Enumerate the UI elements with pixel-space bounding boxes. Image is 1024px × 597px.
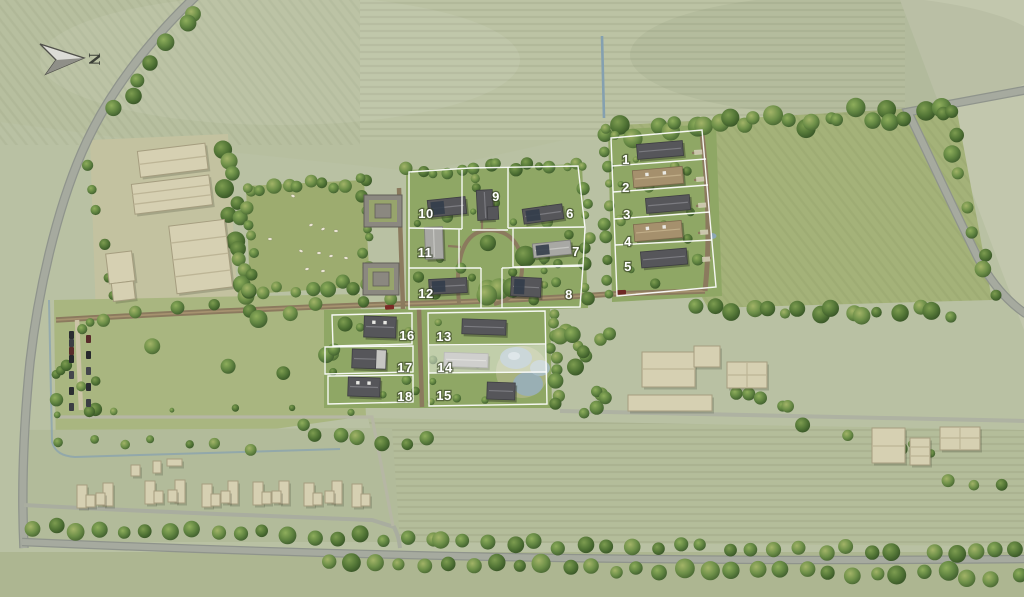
parked-car bbox=[86, 383, 91, 391]
tree bbox=[144, 338, 160, 354]
tree bbox=[578, 537, 595, 554]
tree bbox=[82, 160, 93, 171]
tree bbox=[92, 522, 108, 538]
tree bbox=[146, 435, 154, 443]
tree bbox=[943, 145, 960, 162]
tree bbox=[567, 359, 584, 376]
tree bbox=[254, 185, 265, 196]
tree bbox=[91, 376, 101, 386]
tree bbox=[356, 173, 366, 183]
plot-region-17[interactable] bbox=[325, 346, 413, 374]
tree bbox=[342, 553, 361, 572]
tree bbox=[668, 116, 681, 129]
village-house-wing bbox=[96, 493, 105, 505]
village-house-wing bbox=[313, 493, 322, 505]
tree bbox=[760, 301, 775, 316]
tree bbox=[744, 543, 758, 557]
plot-region-7[interactable] bbox=[513, 228, 585, 267]
tree bbox=[320, 281, 336, 297]
tree bbox=[891, 304, 908, 321]
tree bbox=[110, 408, 118, 416]
tree bbox=[599, 231, 612, 244]
tree bbox=[952, 167, 964, 179]
tree bbox=[688, 299, 703, 314]
tree bbox=[871, 567, 884, 580]
plot-region-4[interactable] bbox=[615, 218, 720, 245]
tree bbox=[803, 114, 820, 131]
tree bbox=[170, 408, 175, 413]
tree bbox=[232, 404, 239, 411]
tree bbox=[763, 105, 783, 125]
tree bbox=[945, 311, 956, 322]
tree bbox=[551, 541, 565, 555]
tree bbox=[240, 201, 253, 214]
tree bbox=[322, 554, 336, 568]
tree bbox=[549, 398, 561, 410]
plot-region-3[interactable] bbox=[614, 190, 718, 218]
parked-car bbox=[86, 335, 91, 343]
tree bbox=[234, 527, 248, 541]
tree bbox=[346, 282, 359, 295]
tree bbox=[830, 114, 843, 127]
tree bbox=[846, 98, 865, 117]
tree bbox=[97, 314, 110, 327]
plot-region-12[interactable] bbox=[409, 268, 481, 308]
tree bbox=[795, 418, 810, 433]
east-farm-building bbox=[694, 346, 720, 367]
plot-region-18[interactable] bbox=[328, 375, 413, 404]
tree bbox=[821, 566, 835, 580]
tree bbox=[455, 534, 469, 548]
tree bbox=[962, 202, 974, 214]
tree bbox=[1007, 541, 1023, 557]
tree bbox=[244, 220, 254, 230]
tree bbox=[255, 525, 268, 538]
tree bbox=[838, 539, 853, 554]
tree bbox=[328, 183, 339, 194]
tree bbox=[374, 436, 389, 451]
plot-region-15[interactable] bbox=[429, 373, 547, 406]
village-outbuilding bbox=[167, 459, 182, 466]
parked-car bbox=[69, 347, 74, 355]
tree bbox=[316, 177, 327, 188]
tree bbox=[289, 405, 295, 411]
tree bbox=[651, 565, 667, 581]
tree bbox=[968, 543, 984, 559]
tree bbox=[724, 544, 737, 557]
tree bbox=[367, 554, 384, 571]
tree bbox=[243, 183, 253, 193]
tree bbox=[507, 536, 524, 553]
tree bbox=[99, 239, 110, 250]
tree bbox=[701, 561, 720, 580]
tree bbox=[871, 307, 882, 318]
plot-region-9[interactable] bbox=[462, 167, 508, 230]
tree bbox=[118, 526, 131, 539]
tree bbox=[67, 523, 85, 541]
village-outbuilding bbox=[153, 461, 161, 473]
tree bbox=[789, 301, 805, 317]
tree bbox=[402, 439, 414, 451]
tree bbox=[577, 345, 590, 358]
tree bbox=[53, 438, 63, 448]
tree bbox=[186, 440, 194, 448]
far-east-building bbox=[910, 438, 930, 465]
tree bbox=[624, 539, 641, 556]
tree bbox=[605, 290, 614, 299]
village-house-wing bbox=[168, 490, 177, 502]
tree bbox=[652, 542, 665, 555]
tree bbox=[969, 480, 980, 491]
tree bbox=[601, 124, 611, 134]
car-on-road bbox=[617, 290, 626, 295]
tree bbox=[180, 15, 197, 32]
tree bbox=[417, 559, 432, 574]
tree bbox=[674, 537, 688, 551]
tree bbox=[291, 287, 302, 298]
tree bbox=[309, 297, 323, 311]
tree bbox=[750, 561, 767, 578]
tree bbox=[171, 301, 185, 315]
tree bbox=[91, 205, 101, 215]
tree bbox=[958, 570, 975, 587]
tree bbox=[297, 419, 309, 431]
tree bbox=[927, 544, 943, 560]
car-court bbox=[364, 195, 402, 227]
tree bbox=[526, 533, 542, 549]
tree bbox=[975, 261, 992, 278]
tree bbox=[25, 521, 41, 537]
tree bbox=[305, 175, 318, 188]
tree bbox=[334, 428, 349, 443]
tree bbox=[599, 540, 613, 554]
tree bbox=[347, 409, 354, 416]
plot-region-13[interactable] bbox=[428, 312, 546, 345]
tree bbox=[939, 561, 959, 581]
village-house-wing bbox=[262, 492, 271, 504]
tree bbox=[942, 474, 955, 487]
tree bbox=[480, 535, 495, 550]
tree bbox=[142, 55, 157, 70]
plot-region-14[interactable] bbox=[429, 345, 547, 373]
parked-car bbox=[69, 339, 74, 347]
tree bbox=[675, 559, 695, 579]
car-on-road bbox=[385, 305, 394, 310]
sheep bbox=[317, 252, 321, 255]
compass-north-label: N bbox=[85, 53, 104, 66]
tree bbox=[225, 166, 240, 181]
tree bbox=[948, 545, 966, 563]
tree bbox=[746, 111, 759, 124]
tree bbox=[864, 112, 881, 129]
car-court-center bbox=[375, 204, 391, 218]
tree bbox=[881, 114, 898, 131]
tree bbox=[579, 408, 590, 419]
tree bbox=[130, 74, 144, 88]
village-house-wing bbox=[211, 494, 220, 506]
tree bbox=[330, 532, 345, 547]
tree bbox=[76, 381, 86, 391]
tree bbox=[865, 545, 879, 559]
tree bbox=[882, 543, 900, 561]
tree bbox=[183, 521, 200, 538]
tree bbox=[945, 105, 958, 118]
tree bbox=[105, 100, 121, 116]
tree bbox=[599, 147, 610, 158]
tree bbox=[212, 526, 226, 540]
tree bbox=[250, 310, 268, 328]
plot-region-5[interactable] bbox=[616, 245, 724, 290]
tree bbox=[548, 373, 564, 389]
tree bbox=[308, 531, 323, 546]
tree bbox=[401, 531, 415, 545]
parked-car bbox=[69, 371, 74, 379]
tree bbox=[754, 391, 767, 404]
plot-region-2[interactable] bbox=[613, 161, 715, 191]
tree bbox=[551, 352, 563, 364]
village-house-wing bbox=[86, 495, 95, 507]
tree bbox=[979, 249, 992, 262]
tree bbox=[162, 523, 179, 540]
sheep bbox=[268, 238, 272, 241]
parked-car bbox=[69, 387, 74, 395]
plot-region-16[interactable] bbox=[332, 313, 412, 346]
car-court-center bbox=[373, 272, 389, 286]
tree bbox=[966, 226, 978, 238]
tree bbox=[50, 393, 63, 406]
tree bbox=[564, 326, 581, 343]
tree bbox=[49, 518, 65, 534]
tree bbox=[125, 88, 142, 105]
tree bbox=[722, 562, 739, 579]
tree bbox=[339, 179, 352, 192]
tree bbox=[209, 299, 220, 310]
plot-region-1[interactable] bbox=[612, 133, 712, 165]
tree bbox=[357, 248, 368, 259]
village-house-wing bbox=[221, 491, 230, 503]
tree bbox=[246, 269, 258, 281]
tree bbox=[54, 412, 61, 419]
tree bbox=[308, 428, 322, 442]
tree bbox=[432, 531, 449, 548]
tree bbox=[365, 233, 373, 241]
tree bbox=[221, 359, 236, 374]
tree bbox=[780, 308, 790, 318]
tree bbox=[991, 290, 1002, 301]
field-south-furrows bbox=[368, 418, 1024, 546]
farmhouse bbox=[106, 251, 135, 284]
tree bbox=[563, 560, 578, 575]
parked-car bbox=[86, 367, 91, 375]
tree bbox=[532, 554, 551, 573]
tree bbox=[242, 283, 256, 297]
tree bbox=[584, 232, 596, 244]
tree bbox=[581, 292, 595, 306]
tree bbox=[548, 318, 559, 329]
tree bbox=[352, 525, 369, 542]
tree bbox=[90, 435, 99, 444]
tree bbox=[629, 561, 643, 575]
tree bbox=[266, 178, 281, 193]
sheep-pasture bbox=[246, 180, 370, 294]
village-house-wing bbox=[154, 491, 163, 503]
tree bbox=[209, 438, 220, 449]
village-house-wing bbox=[325, 491, 334, 503]
tree bbox=[896, 112, 911, 127]
tree bbox=[822, 300, 839, 317]
village-house-wing bbox=[272, 491, 281, 503]
tree bbox=[792, 541, 806, 555]
tree bbox=[583, 558, 599, 574]
plot-region-8[interactable] bbox=[502, 267, 583, 308]
tree bbox=[480, 235, 496, 251]
tree bbox=[603, 327, 616, 340]
tree bbox=[922, 302, 940, 320]
tree bbox=[853, 307, 871, 325]
village-house-wing bbox=[361, 494, 370, 506]
tree bbox=[377, 535, 389, 547]
sheep bbox=[334, 230, 338, 233]
tree bbox=[245, 444, 257, 456]
tree bbox=[694, 539, 706, 551]
tree bbox=[766, 542, 781, 557]
tree bbox=[514, 560, 526, 572]
tree bbox=[392, 558, 404, 570]
parked-car bbox=[69, 403, 74, 411]
tree bbox=[842, 430, 853, 441]
tree bbox=[77, 324, 87, 334]
tree bbox=[467, 558, 482, 573]
plot-region-6[interactable] bbox=[508, 167, 585, 228]
tree bbox=[129, 306, 142, 319]
tree bbox=[87, 185, 96, 194]
parked-car bbox=[86, 399, 91, 407]
east-farm-barn bbox=[628, 395, 712, 411]
tree bbox=[844, 568, 861, 585]
tree bbox=[271, 282, 282, 293]
tree bbox=[708, 298, 724, 314]
tree bbox=[598, 218, 611, 231]
tree bbox=[610, 566, 623, 579]
tree bbox=[138, 524, 152, 538]
tree bbox=[86, 318, 95, 327]
parked-car bbox=[69, 331, 74, 339]
tree bbox=[283, 306, 298, 321]
tree bbox=[772, 561, 789, 578]
tree bbox=[215, 179, 234, 198]
tree bbox=[887, 566, 906, 585]
tree bbox=[291, 181, 303, 193]
tree bbox=[996, 479, 1008, 491]
tree bbox=[276, 366, 290, 380]
tree bbox=[279, 527, 297, 545]
farmhouse-wing bbox=[111, 281, 135, 302]
tree bbox=[782, 113, 796, 127]
tree bbox=[358, 296, 369, 307]
parked-car bbox=[86, 351, 91, 359]
plot-region-11[interactable] bbox=[409, 228, 459, 268]
tree bbox=[120, 440, 130, 450]
tree bbox=[601, 275, 612, 286]
tree bbox=[987, 542, 1002, 557]
plot-region-10[interactable] bbox=[409, 171, 462, 228]
tree bbox=[694, 117, 713, 136]
village-outbuilding bbox=[131, 465, 140, 476]
tree bbox=[306, 282, 320, 296]
site-plan-svg: 123456789101112131415161718 N bbox=[0, 0, 1024, 597]
tree bbox=[800, 561, 816, 577]
tree bbox=[249, 248, 259, 258]
tree bbox=[982, 571, 998, 587]
tree bbox=[549, 309, 559, 319]
tree bbox=[349, 430, 364, 445]
sheep bbox=[321, 269, 325, 272]
tree bbox=[819, 545, 834, 560]
tree bbox=[917, 565, 931, 579]
site-plan-map: 123456789101112131415161718 N bbox=[0, 0, 1024, 597]
tree bbox=[599, 391, 612, 404]
tree bbox=[488, 554, 505, 571]
tree bbox=[420, 431, 434, 445]
tree bbox=[441, 557, 456, 572]
tree bbox=[84, 406, 95, 417]
tree bbox=[781, 400, 794, 413]
tree bbox=[722, 303, 740, 321]
tree bbox=[602, 255, 612, 265]
tree bbox=[257, 287, 270, 300]
car-court bbox=[363, 263, 399, 295]
parked-car bbox=[69, 355, 74, 363]
tree bbox=[721, 109, 739, 127]
tree bbox=[246, 231, 256, 241]
tree bbox=[157, 33, 175, 51]
tree bbox=[949, 128, 964, 143]
